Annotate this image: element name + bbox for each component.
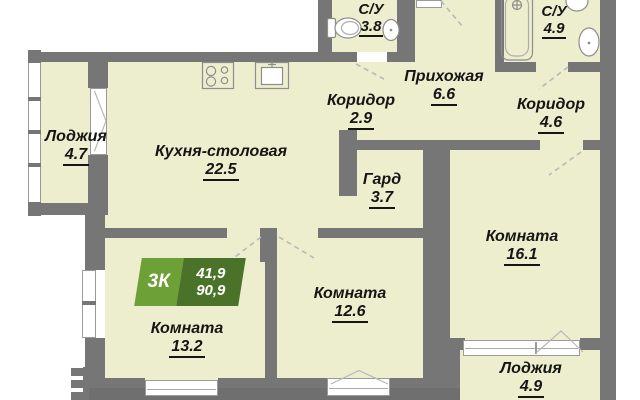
stove-icon [203, 63, 234, 89]
room-name: Кухня-столовая [141, 143, 301, 161]
room-area: 4.9 [518, 378, 544, 398]
room-area-row: 16.1 [462, 246, 582, 266]
room-area: 3.7 [369, 189, 395, 209]
room-area: 3.8 [359, 18, 384, 37]
room-label-loggia-bottom-right: Лоджия 4.9 [471, 360, 591, 398]
room-area-row: 12.6 [290, 303, 410, 323]
fixtures-overlay [0, 0, 640, 400]
room-label-room-left: Комната 13.2 [127, 320, 247, 358]
room-area: 2.9 [348, 110, 374, 130]
room-area-row: 22.5 [141, 161, 301, 181]
badge-areas: 41,9 90,9 [180, 258, 242, 306]
room-area: 12.6 [332, 303, 367, 323]
badge-living-area: 41,9 [196, 265, 225, 282]
room-name: Гард [342, 171, 422, 189]
room-area: 4.6 [538, 114, 564, 134]
badge-total-area: 90,9 [196, 282, 225, 299]
room-name: С/У [514, 3, 594, 20]
room-area: 4.7 [63, 146, 89, 166]
room-label-room-right: Комната 16.1 [462, 228, 582, 266]
room-name: С/У [331, 1, 411, 18]
room-area: 13.2 [169, 338, 204, 358]
room-name: Лоджия [471, 360, 591, 378]
room-area-row: 2.9 [301, 110, 421, 130]
room-area-row: 3.7 [342, 189, 422, 209]
room-label-wardrobe: Гард 3.7 [342, 171, 422, 209]
badge-apartment-type: 3К [138, 258, 180, 306]
room-label-corridor-right: Коридор 4.6 [491, 96, 611, 134]
room-label-hallway: Прихожая 6.6 [384, 68, 504, 106]
room-label-bathroom-small: С/У 3.8 [331, 1, 411, 37]
floor-plan: Лоджия 4.7 Кухня-столовая 22.5 Коридор 2… [0, 0, 640, 400]
room-area-row: 4.9 [514, 20, 594, 39]
room-area-row: 6.6 [384, 86, 504, 106]
room-name: Лоджия [6, 128, 146, 146]
room-name: Коридор [491, 96, 611, 114]
kitchen-sink-icon [256, 61, 289, 89]
room-label-bathroom-large: С/У 4.9 [514, 3, 594, 39]
room-name: Прихожая [384, 68, 504, 86]
room-area: 6.6 [431, 86, 457, 106]
room-name: Комната [462, 228, 582, 246]
room-area-row: 13.2 [127, 338, 247, 358]
room-label-room-middle: Комната 12.6 [290, 285, 410, 323]
room-area-row: 3.8 [331, 18, 411, 37]
room-area: 4.9 [542, 20, 567, 39]
room-area: 22.5 [203, 161, 238, 181]
room-area-row: 4.9 [471, 378, 591, 398]
room-area: 16.1 [504, 246, 539, 266]
room-area-row: 4.6 [491, 114, 611, 134]
badge-content: 3К 41,9 90,9 [138, 258, 242, 306]
room-label-kitchen: Кухня-столовая 22.5 [141, 143, 301, 181]
room-name: Комната [127, 320, 247, 338]
apartment-badge: 3К 41,9 90,9 [138, 258, 242, 306]
room-name: Комната [290, 285, 410, 303]
room-label-loggia-top-left: Лоджия 4.7 [6, 128, 146, 166]
room-area-row: 4.7 [6, 146, 146, 166]
